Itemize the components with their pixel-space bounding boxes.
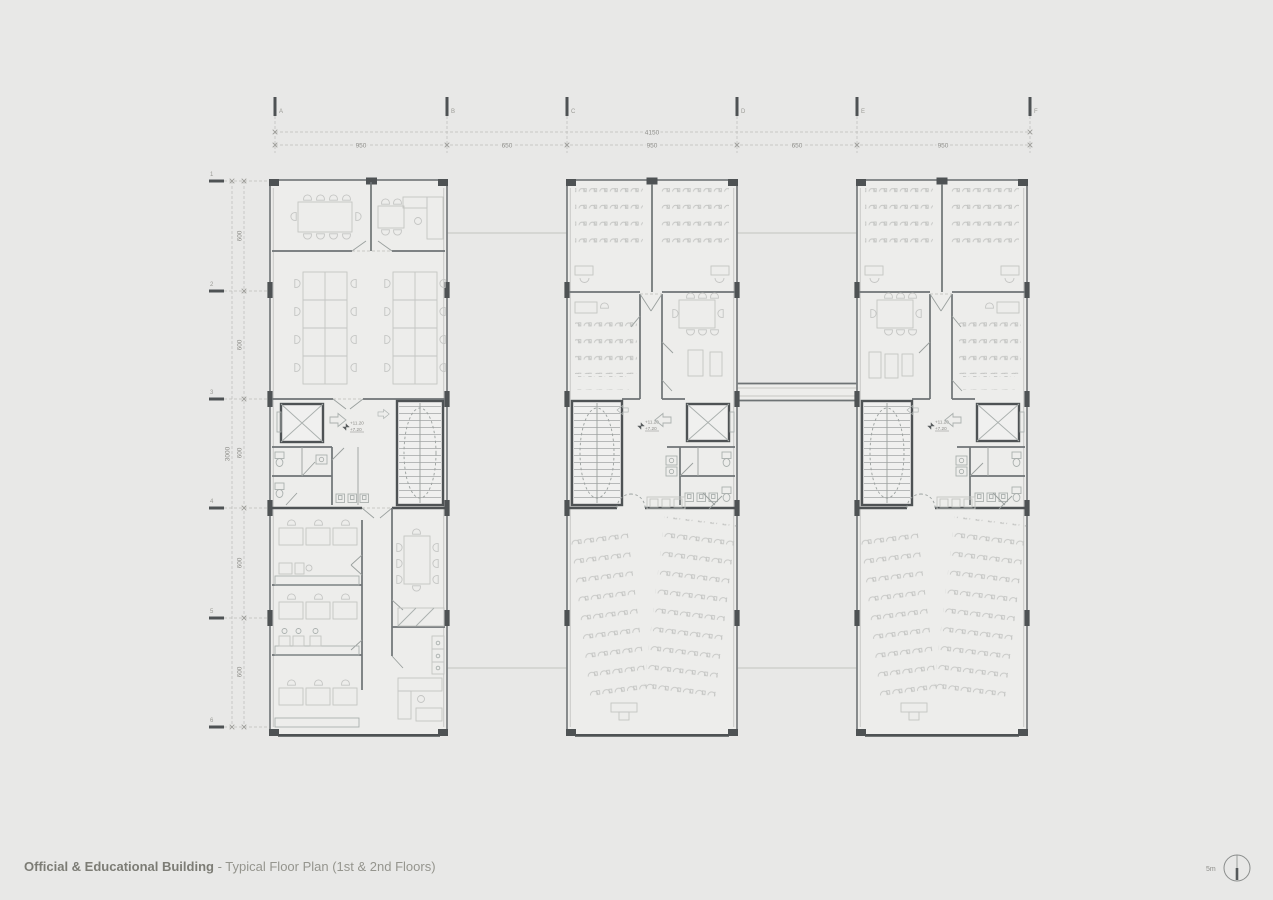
col-dim: 950 — [938, 143, 949, 150]
staircase — [397, 401, 443, 505]
overall-height-dim: 3000 — [225, 446, 232, 461]
row-ticks: 1 2 3 4 5 6 — [209, 172, 224, 729]
grid-col-label: D — [741, 109, 746, 115]
grid-col-label: E — [861, 109, 865, 115]
grid-row-label: 6 — [210, 718, 214, 724]
drawing-title-plan: - Typical Floor Plan (1st & 2nd Floors) — [214, 859, 436, 874]
bridge-corridor — [737, 384, 857, 401]
row-dim: 600 — [237, 230, 244, 241]
scale-label: 5m — [1206, 866, 1216, 873]
building-left-office — [267, 178, 449, 737]
row-dim: 600 — [237, 557, 244, 568]
grid-col-label: C — [571, 109, 576, 115]
col-dim: 950 — [356, 143, 367, 150]
row-grid-dimensions: 1 2 3 4 5 6 3000 600 600 600 600 600 — [209, 172, 268, 729]
grid-row-label: 2 — [210, 282, 214, 288]
overall-width-dim: 4150 — [645, 130, 660, 137]
col-dim: 650 — [502, 143, 513, 150]
grid-row-label: 3 — [210, 390, 214, 396]
scale-bar: 5m — [1133, 857, 1216, 874]
building-middle-education — [564, 178, 739, 737]
column-ticks: A B C D E F — [274, 97, 1039, 116]
column-grid-dimensions: A B C D E F 4150 950 650 950 650 950 — [273, 97, 1038, 153]
row-dim: 600 — [237, 447, 244, 458]
plan-drawing: +11.20 +7.20 — [0, 0, 1273, 900]
drawing-title: Official & Educational Building - Typica… — [24, 859, 436, 874]
row-dim: 600 — [237, 339, 244, 350]
grid-col-label: B — [451, 109, 455, 115]
floor-plan-sheet: +11.20 +7.20 — [0, 0, 1273, 900]
drawing-title-building: Official & Educational Building — [24, 859, 214, 874]
col-dim: 950 — [647, 143, 658, 150]
row-dim: 600 — [237, 666, 244, 677]
building-right-education — [854, 178, 1029, 737]
grid-col-label: F — [1034, 109, 1038, 115]
grid-col-label: A — [279, 109, 283, 115]
elevator — [277, 404, 323, 442]
grid-row-label: 4 — [210, 499, 214, 505]
north-indicator — [1224, 855, 1250, 881]
grid-row-label: 5 — [210, 609, 214, 615]
grid-row-label: 1 — [210, 172, 214, 178]
col-dim: 650 — [792, 143, 803, 150]
